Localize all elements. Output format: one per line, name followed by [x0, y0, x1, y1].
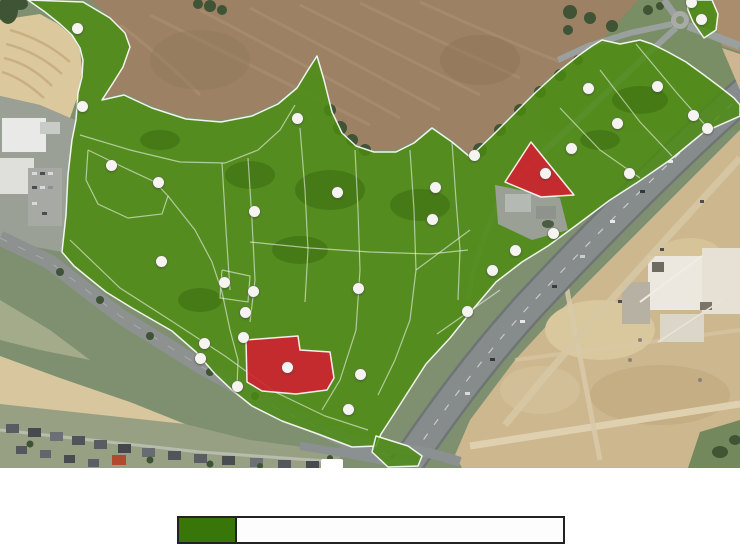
parcel-marker[interactable] [686, 0, 697, 8]
legend-bar [177, 516, 565, 544]
parcel-marker[interactable] [510, 245, 521, 256]
parcel-marker[interactable] [156, 256, 167, 267]
parcel-marker[interactable] [353, 283, 364, 294]
zone-available-main-park[interactable] [28, 0, 740, 447]
parcel-marker[interactable] [462, 306, 473, 317]
parcel-marker[interactable] [77, 101, 88, 112]
parcel-marker[interactable] [219, 277, 230, 288]
parcel-marker[interactable] [249, 206, 260, 217]
parcel-marker[interactable] [696, 14, 707, 25]
parcel-marker[interactable] [199, 338, 210, 349]
parcel-marker[interactable] [153, 177, 164, 188]
parcel-marker[interactable] [427, 214, 438, 225]
zone-available-south-wedge[interactable] [372, 436, 422, 467]
parcel-marker[interactable] [248, 286, 259, 297]
parcel-marker[interactable] [282, 362, 293, 373]
parcel-marker[interactable] [652, 81, 663, 92]
map-viewport[interactable] [0, 0, 740, 468]
parcel-marker[interactable] [566, 143, 577, 154]
parcel-marker[interactable] [612, 118, 623, 129]
parcel-marker[interactable] [548, 228, 559, 239]
parcel-marker[interactable] [487, 265, 498, 276]
parcel-marker[interactable] [332, 187, 343, 198]
legend-swatch-available [177, 516, 237, 544]
parcel-marker[interactable] [238, 332, 249, 343]
zones-overlay [0, 0, 740, 468]
parcel-marker[interactable] [106, 160, 117, 171]
parcel-marker[interactable] [624, 168, 635, 179]
parcel-marker[interactable] [343, 404, 354, 415]
parcel-marker[interactable] [469, 150, 480, 161]
map-bottom-control [321, 459, 343, 468]
parcel-marker[interactable] [430, 182, 441, 193]
parcel-marker[interactable] [540, 168, 551, 179]
parcel-marker[interactable] [72, 23, 83, 34]
parcel-marker[interactable] [688, 110, 699, 121]
parcel-marker[interactable] [292, 113, 303, 124]
parcel-marker[interactable] [355, 369, 366, 380]
legend-label-cell [237, 516, 565, 544]
parcel-marker[interactable] [195, 353, 206, 364]
parcel-marker[interactable] [240, 307, 251, 318]
parcel-marker[interactable] [702, 123, 713, 134]
parcel-marker[interactable] [232, 381, 243, 392]
parcel-marker[interactable] [583, 83, 594, 94]
